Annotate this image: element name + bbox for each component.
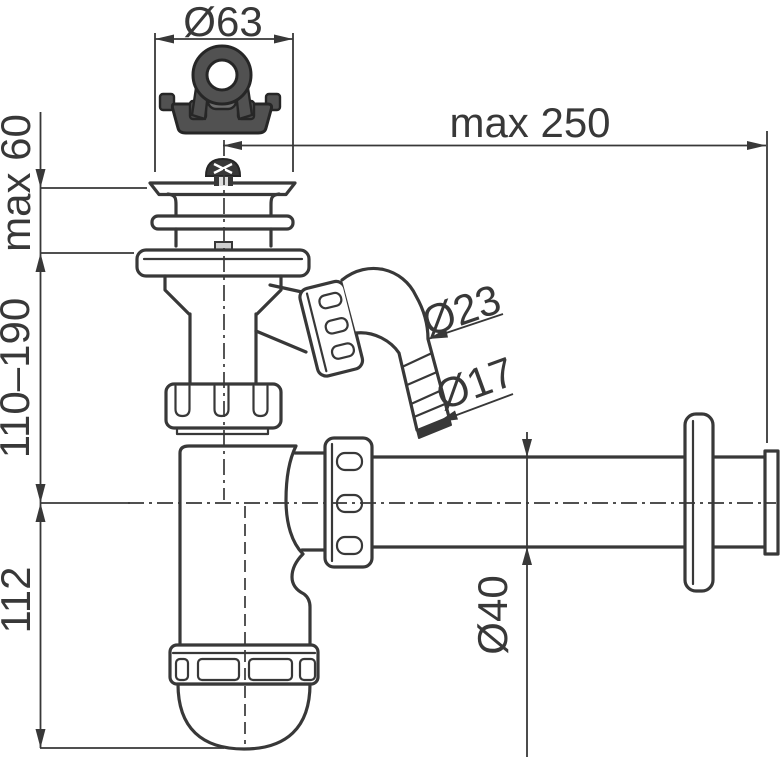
dim-label-cup-depth: 112 xyxy=(0,567,39,634)
technical-drawing-page: Ø63 max 250 max 60 110–190 112 Ø40 Ø23 Ø… xyxy=(0,0,780,762)
strainer-mid-plate xyxy=(152,216,293,229)
cup-nut xyxy=(170,645,318,684)
sink-flange xyxy=(137,250,309,276)
dim-label-max-reach: max 250 xyxy=(449,99,610,146)
sink-trap-technical-drawing: Ø63 max 250 max 60 110–190 112 Ø40 Ø23 Ø… xyxy=(0,0,780,762)
drawing-background xyxy=(0,0,780,762)
dim-label-plug-diameter: Ø63 xyxy=(183,0,262,45)
dim-label-max-mount-height: max 60 xyxy=(0,114,39,252)
ring-handle-hole xyxy=(207,60,237,90)
dim-label-height-range: 110–190 xyxy=(0,298,38,458)
dim-label-pipe-diameter: Ø40 xyxy=(469,575,516,654)
